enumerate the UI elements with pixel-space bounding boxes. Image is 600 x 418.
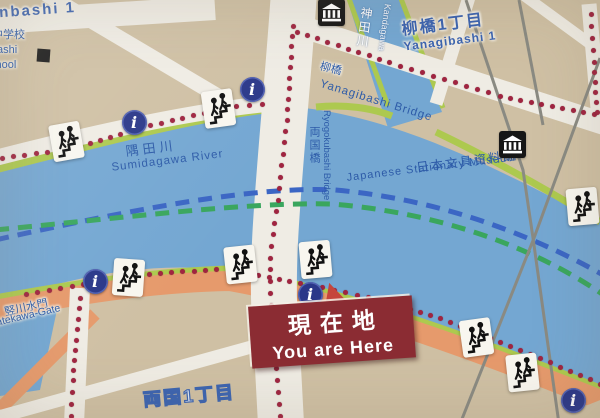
- walking-route-dot: [203, 268, 208, 273]
- walking-route-dot: [578, 373, 583, 378]
- walking-route-dot: [192, 269, 197, 274]
- walking-route-dot: [275, 378, 280, 383]
- walking-route-dot: [428, 313, 433, 318]
- walking-route-dot: [47, 288, 52, 293]
- walking-route-dot: [69, 402, 74, 407]
- walking-route-dot: [398, 64, 403, 69]
- walking-route-dot: [58, 286, 63, 291]
- walking-route-dot: [581, 110, 586, 115]
- walking-route-dot: [539, 102, 544, 107]
- walking-route-dot: [346, 47, 351, 52]
- walking-route-dot: [75, 327, 80, 332]
- walking-route-dot: [589, 12, 594, 17]
- walking-route-dot: [69, 414, 74, 418]
- walking-route-dot: [518, 98, 523, 103]
- walking-route-dot: [287, 76, 292, 81]
- walking-route-dot: [269, 244, 274, 249]
- walking-route-dot: [588, 377, 593, 382]
- walking-route-dot: [158, 271, 163, 276]
- walking-route-dot: [286, 97, 291, 102]
- walking-route-dot: [377, 57, 382, 62]
- walking-route-dot: [169, 270, 174, 275]
- school-label-frag2: chool: [0, 58, 25, 73]
- walking-route-dot: [498, 340, 503, 345]
- walking-route-dot: [558, 365, 563, 370]
- stairs-access-card: [298, 239, 332, 279]
- walking-route-dot: [518, 348, 523, 353]
- walking-route-dot: [287, 86, 292, 91]
- walking-route-dot: [409, 67, 414, 72]
- walking-route-dot: [260, 102, 265, 107]
- you-are-here-sign: 現在地 You are Here: [248, 295, 416, 368]
- walking-route-dot: [508, 344, 513, 349]
- stairs-access-card: [458, 317, 494, 358]
- walking-route-dot: [276, 390, 281, 395]
- walking-route-dot: [170, 118, 175, 123]
- walking-route-dot: [568, 369, 573, 374]
- information-icon: i: [240, 77, 265, 102]
- stairs-walkers-icon: [507, 355, 536, 389]
- stairs-access-card: [505, 352, 540, 392]
- walking-route-dot: [78, 296, 83, 301]
- walking-route-dot: [72, 358, 77, 363]
- walking-route-dot: [355, 293, 360, 298]
- museum-building-icon: [502, 134, 523, 155]
- stairs-access-card: [565, 186, 599, 226]
- walking-route-dot: [268, 291, 273, 296]
- walking-route-dot: [276, 198, 281, 203]
- school-label: 中学校 ashi chool: [0, 28, 25, 73]
- walking-route-dot: [278, 175, 283, 180]
- building-icon: [499, 131, 526, 158]
- walking-route-dot: [71, 378, 76, 383]
- walking-route-dot: [73, 348, 78, 353]
- walking-route-dot: [278, 414, 283, 418]
- school-icon: [36, 48, 50, 62]
- walking-route-dot: [550, 104, 555, 109]
- museum-building-icon: [321, 2, 342, 23]
- walking-route-dot: [77, 306, 82, 311]
- walking-route-dot: [267, 275, 272, 280]
- walking-route-dot: [431, 74, 436, 79]
- walking-route-dot: [268, 279, 273, 284]
- school-label-frag1: ashi: [0, 43, 25, 58]
- walking-route-dot: [76, 317, 81, 322]
- stairs-walkers-icon: [301, 242, 330, 275]
- walking-route-dot: [498, 94, 503, 99]
- stairs-walkers-icon: [203, 91, 233, 125]
- walking-route-dot: [35, 290, 40, 295]
- stairs-walkers-icon: [114, 261, 142, 294]
- walking-route-dot: [589, 24, 594, 29]
- walking-route-dot: [291, 24, 296, 29]
- walking-route-dot: [287, 279, 292, 284]
- walking-route-dot: [268, 267, 273, 272]
- walking-route-dot: [268, 256, 273, 261]
- walking-route-dot: [418, 310, 423, 315]
- walking-route-dot: [0, 156, 5, 161]
- walking-route-dot: [529, 100, 534, 105]
- ryogokubashi-romaji: Ryogokubashi Bridge: [321, 110, 332, 250]
- walking-route-dot: [560, 106, 565, 111]
- walking-route-dot: [98, 138, 103, 143]
- stairs-walkers-icon: [51, 123, 82, 158]
- walking-route-dot: [336, 43, 341, 48]
- stairs-walkers-icon: [225, 247, 254, 281]
- walking-route-dot: [22, 153, 27, 158]
- walking-route-dot: [592, 70, 597, 75]
- information-icon: i: [561, 388, 586, 413]
- walking-route-dot: [70, 284, 75, 289]
- walking-route-dot: [34, 151, 39, 156]
- walking-route-dot: [277, 277, 282, 282]
- walking-route-dot: [71, 368, 76, 373]
- walking-route-dot: [159, 121, 164, 126]
- stairs-access-card: [200, 88, 236, 129]
- information-icon: i: [122, 110, 147, 135]
- walking-route-dot: [595, 110, 600, 115]
- walking-route-dot: [420, 70, 425, 75]
- walking-route-dot: [70, 390, 75, 395]
- walking-route-dot: [247, 103, 252, 108]
- walking-route-dot: [88, 141, 93, 146]
- walking-route-dot: [277, 402, 282, 407]
- walking-route-dot: [538, 356, 543, 361]
- map-signboard: onbashi 1 中学校 ashi chool 神田川 Kandagawa 柳…: [0, 0, 600, 418]
- stairs-walkers-icon: [461, 320, 491, 354]
- walking-route-dot: [442, 77, 447, 82]
- walking-route-dot: [593, 90, 598, 95]
- walking-route-dot: [290, 34, 295, 39]
- school-label-jp: 中学校: [0, 28, 25, 43]
- information-icon: i: [83, 269, 108, 294]
- walking-route-dot: [285, 118, 290, 123]
- walking-route-dot: [508, 96, 513, 101]
- walking-route-dot: [277, 186, 282, 191]
- building-icon: [318, 0, 345, 26]
- walking-route-dot: [438, 316, 443, 321]
- walking-route-dot: [234, 104, 239, 109]
- walking-route-dot: [305, 33, 310, 38]
- walking-route-dot: [45, 150, 50, 155]
- walking-route-dot: [593, 80, 598, 85]
- walking-route-dot: [464, 84, 469, 89]
- walking-route-dot: [295, 30, 300, 35]
- walking-route-dot: [590, 36, 595, 41]
- walking-route-dot: [591, 48, 596, 53]
- stairs-walkers-icon: [568, 189, 597, 222]
- stairs-access-card: [111, 257, 145, 296]
- walking-route-dot: [147, 272, 152, 277]
- walking-route-dot: [594, 100, 599, 105]
- walking-route-dot: [108, 135, 113, 140]
- walking-route-dot: [289, 55, 294, 60]
- you-are-here-kanji: 現在地: [287, 300, 385, 341]
- walking-route-dot: [592, 60, 597, 65]
- walking-route-dot: [274, 209, 279, 214]
- walking-route-dot: [571, 108, 576, 113]
- stairs-access-card: [48, 120, 85, 162]
- stairs-access-card: [223, 244, 258, 284]
- walking-route-dot: [11, 154, 16, 159]
- walking-route-dot: [118, 132, 123, 137]
- walking-route-dot: [448, 320, 453, 325]
- ryogokubashi-kanji: 両国橋: [306, 126, 322, 165]
- walking-route-dot: [548, 360, 553, 365]
- walking-route-dot: [24, 292, 29, 297]
- walking-route-dot: [281, 152, 286, 157]
- walking-route-dot: [180, 116, 185, 121]
- walking-route-dot: [74, 338, 79, 343]
